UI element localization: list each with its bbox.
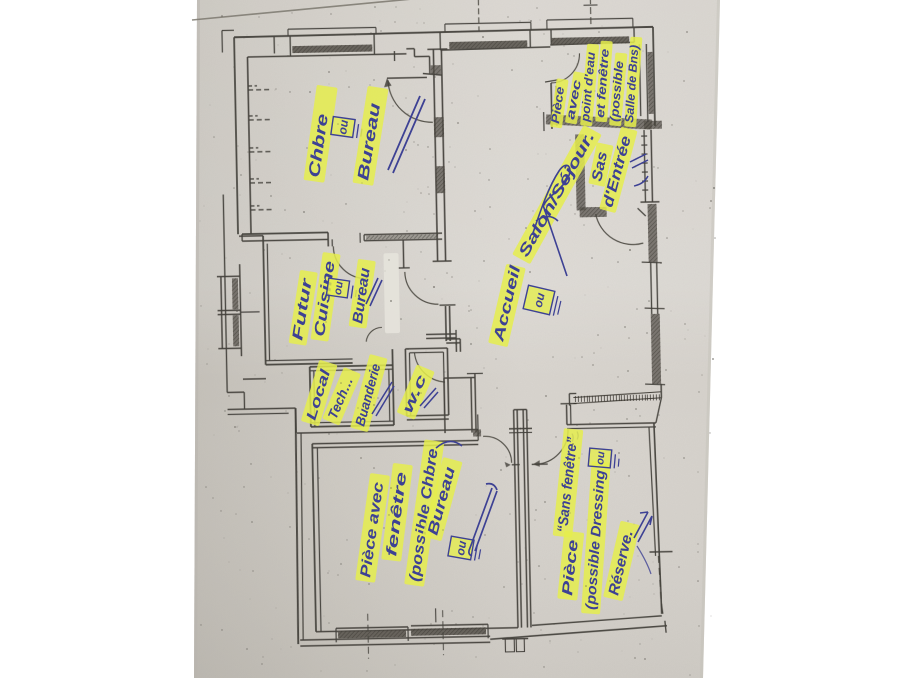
svg-text:ou: ou: [332, 280, 346, 295]
svg-text:ou: ou: [335, 118, 351, 135]
svg-text:ou: ou: [594, 451, 607, 466]
